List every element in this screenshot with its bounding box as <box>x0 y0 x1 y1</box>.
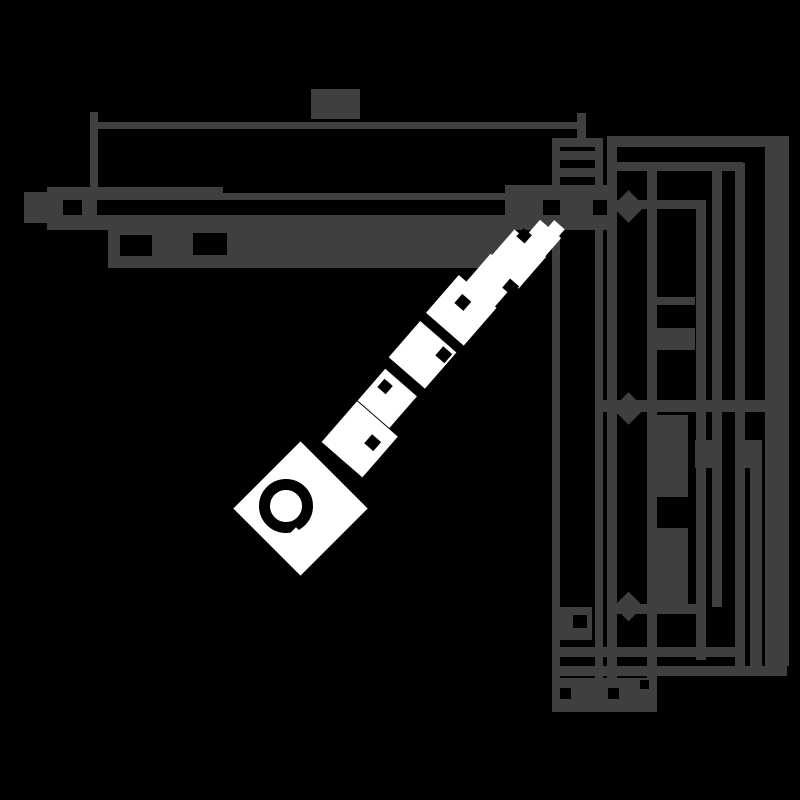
watermark-layer <box>0 0 800 800</box>
screenshot-canvas <box>0 0 800 800</box>
watermark-logo-ring <box>259 479 313 533</box>
